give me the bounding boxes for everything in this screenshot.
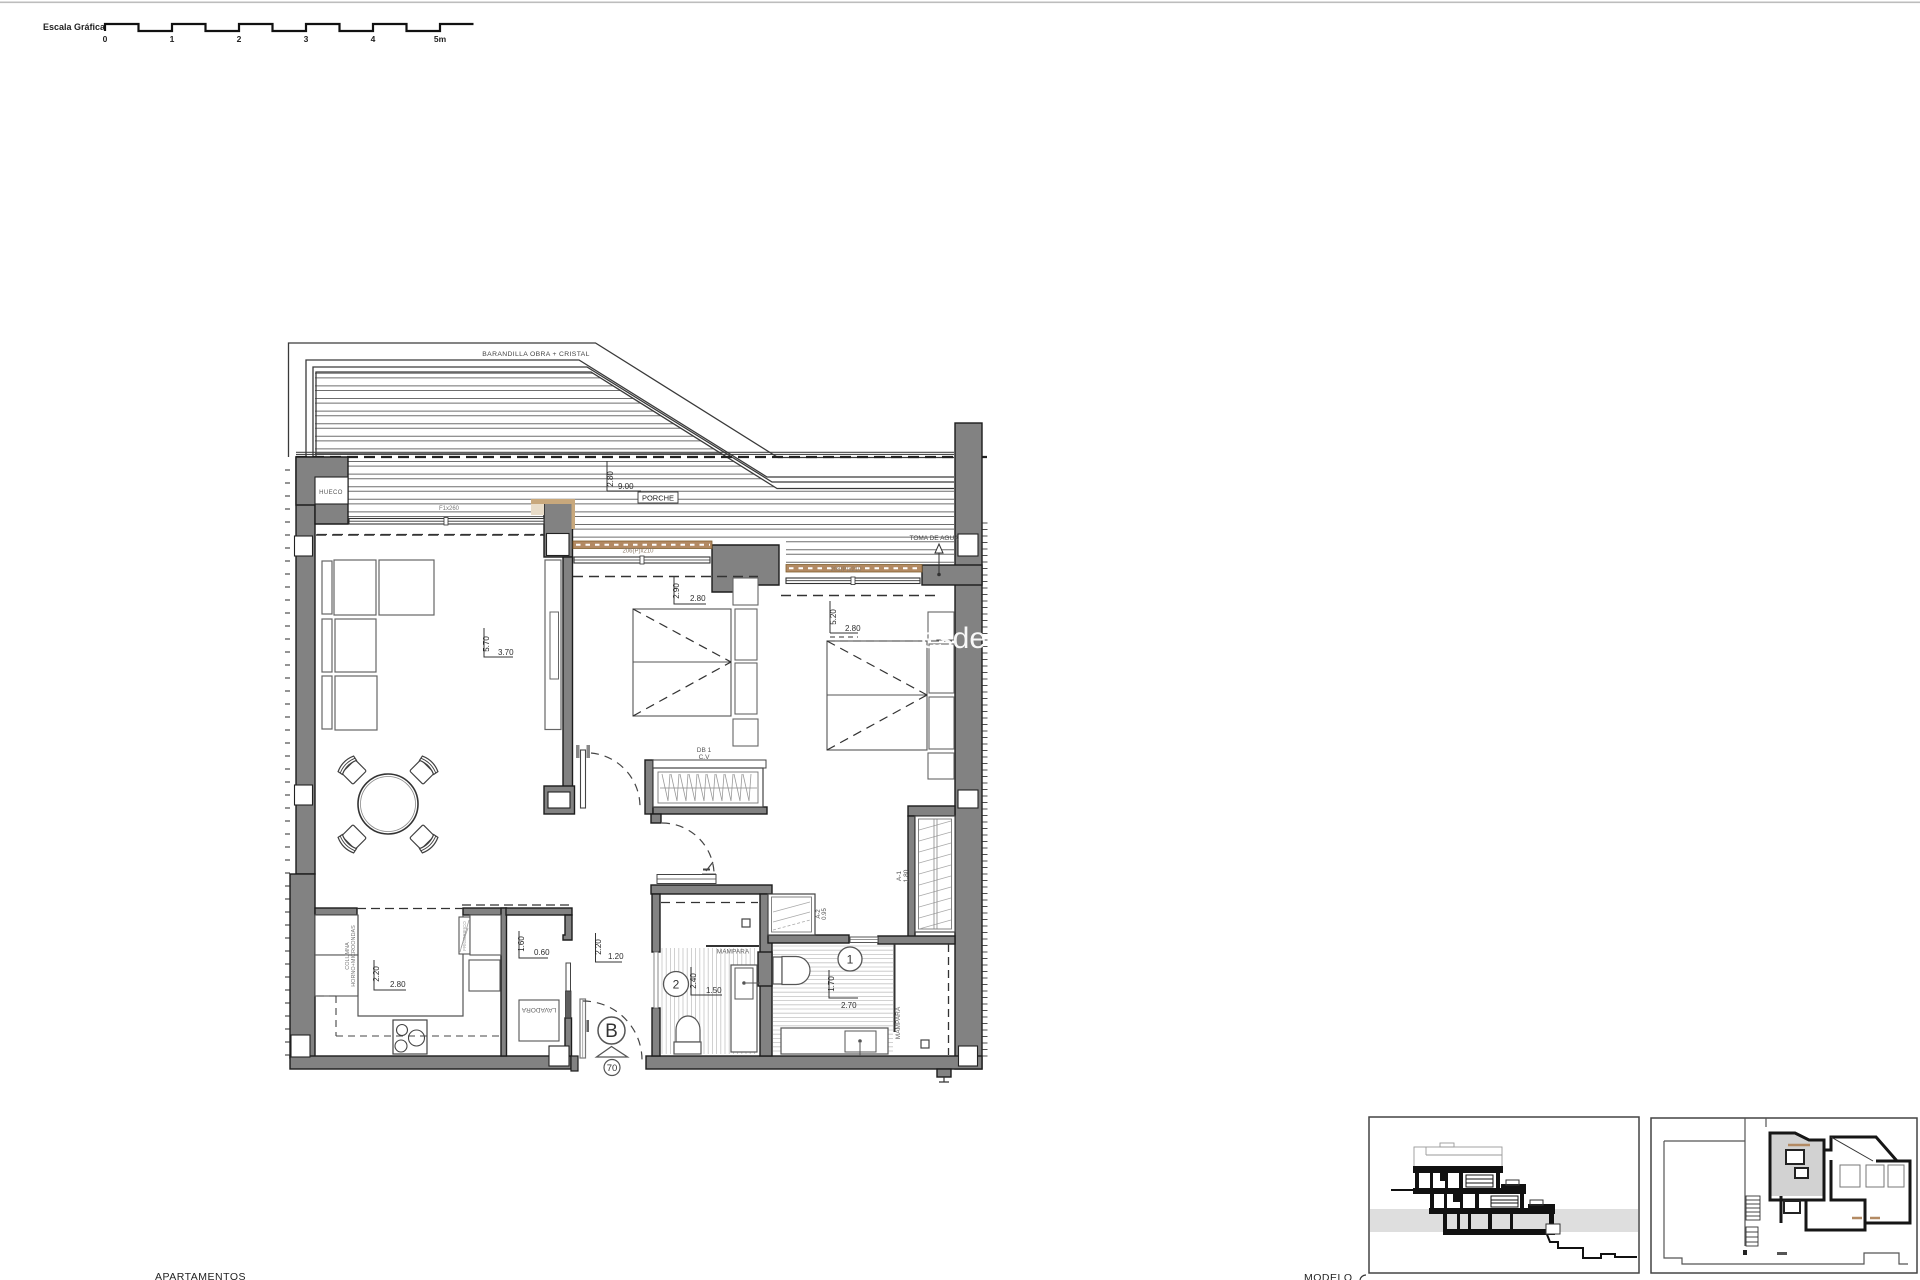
svg-text:4: 4 <box>371 34 376 44</box>
svg-text:206(P)x210: 206(P)x210 <box>622 549 654 555</box>
svg-text:2.20: 2.20 <box>594 939 603 955</box>
svg-text:2.40: 2.40 <box>689 973 698 989</box>
svg-text:C.V: C.V <box>699 754 711 761</box>
svg-text:0.60: 0.60 <box>534 948 550 957</box>
svg-text:1: 1 <box>170 34 175 44</box>
svg-text:2.80: 2.80 <box>690 594 706 603</box>
svg-text:PORCHE: PORCHE <box>642 494 674 503</box>
svg-text:esde: esde <box>921 622 986 655</box>
svg-text:1.50: 1.50 <box>706 986 722 995</box>
svg-text:DB 1: DB 1 <box>697 747 712 754</box>
svg-text:3: 3 <box>304 34 309 44</box>
svg-text:5.70: 5.70 <box>482 636 491 652</box>
svg-text:0: 0 <box>103 34 108 44</box>
svg-text:Escala Gráfica: Escala Gráfica <box>43 22 106 32</box>
svg-text:70: 70 <box>607 1063 618 1074</box>
svg-text:2: 2 <box>237 34 242 44</box>
svg-text:A-1: A-1 <box>896 871 903 882</box>
svg-text:F1x260: F1x260 <box>439 506 460 512</box>
svg-text:3.70: 3.70 <box>498 648 514 657</box>
svg-text:TOMA DE AGUA: TOMA DE AGUA <box>909 535 959 542</box>
svg-text:1.60: 1.60 <box>517 936 526 952</box>
svg-text:1.80: 1.80 <box>903 869 910 882</box>
svg-text:MAMPARA: MAMPARA <box>895 1006 902 1039</box>
svg-text:HORNO+MICROONDAS: HORNO+MICROONDAS <box>351 925 357 987</box>
svg-text:0.95: 0.95 <box>822 908 828 920</box>
svg-text:2.90: 2.90 <box>672 583 681 599</box>
svg-text:2.80: 2.80 <box>390 980 406 989</box>
svg-text:9.00: 9.00 <box>618 482 634 491</box>
svg-text:2.80: 2.80 <box>606 471 615 487</box>
svg-text:208(P)x210: 208(P)x210 <box>830 567 862 573</box>
svg-text:B: B <box>605 1021 618 1042</box>
svg-text:1.70: 1.70 <box>827 976 836 992</box>
svg-text:HUECO: HUECO <box>319 490 343 496</box>
svg-text:APARTAMENTOS: APARTAMENTOS <box>155 1271 246 1280</box>
svg-text:2: 2 <box>673 978 680 992</box>
svg-text:5m: 5m <box>434 34 447 44</box>
svg-text:2.70: 2.70 <box>841 1001 857 1010</box>
svg-text:MODELO: MODELO <box>1304 1272 1353 1280</box>
svg-text:5.20: 5.20 <box>829 609 838 625</box>
svg-text:LAVADORA: LAVADORA <box>521 1006 556 1013</box>
svg-text:1.20: 1.20 <box>608 952 624 961</box>
svg-text:2.80: 2.80 <box>845 624 861 633</box>
svg-text:FRIGORIFICO: FRIGORIFICO <box>462 921 467 951</box>
svg-text:2.20: 2.20 <box>372 966 381 982</box>
svg-text:BARANDILLA OBRA + CRISTAL: BARANDILLA OBRA + CRISTAL <box>482 351 589 358</box>
svg-text:1: 1 <box>847 953 854 967</box>
svg-text:MAMPARA: MAMPARA <box>717 949 750 956</box>
